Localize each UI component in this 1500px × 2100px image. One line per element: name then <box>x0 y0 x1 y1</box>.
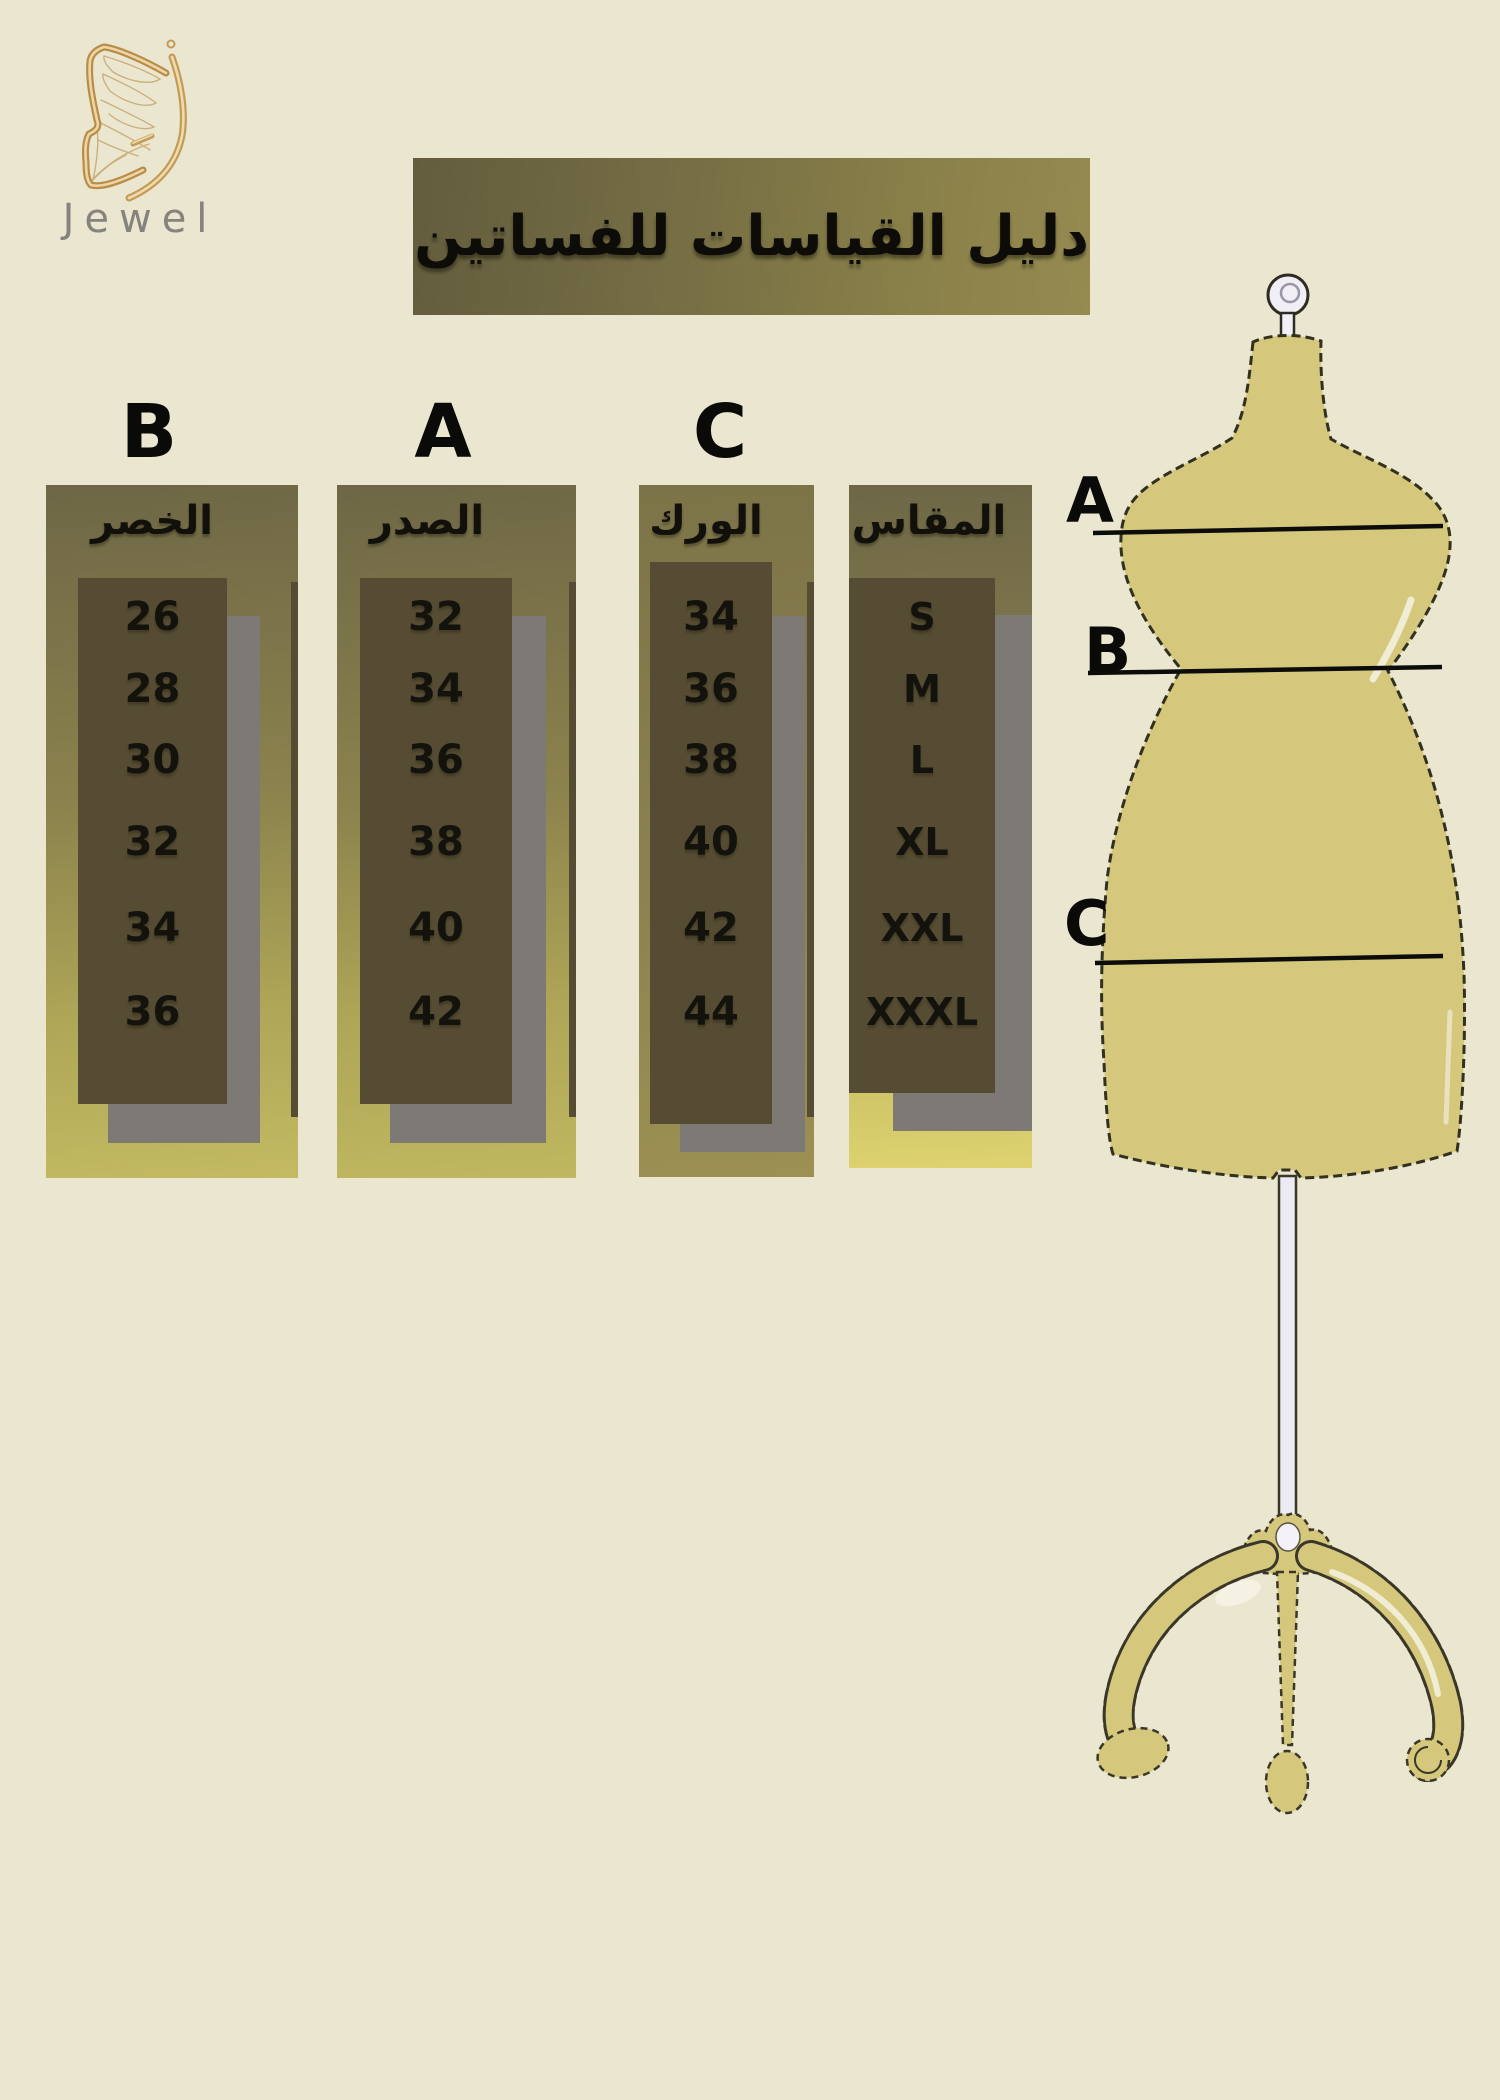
waist-line-label: B <box>1084 614 1131 687</box>
stand-feet <box>1092 1721 1449 1813</box>
hip-line-label: C <box>1064 887 1110 960</box>
stand-legs <box>1119 1556 1449 1766</box>
finial-knob <box>1268 275 1308 341</box>
torso-silhouette <box>1102 335 1465 1178</box>
size-guide-page: { "brand": { "name": "Jewel" }, "title":… <box>0 0 1500 2100</box>
bust-line-label: A <box>1066 464 1114 537</box>
hub-highlight <box>1276 1523 1300 1551</box>
dress-form-diagram: A B C <box>0 0 1500 2100</box>
stand-pole <box>1279 1176 1296 1538</box>
